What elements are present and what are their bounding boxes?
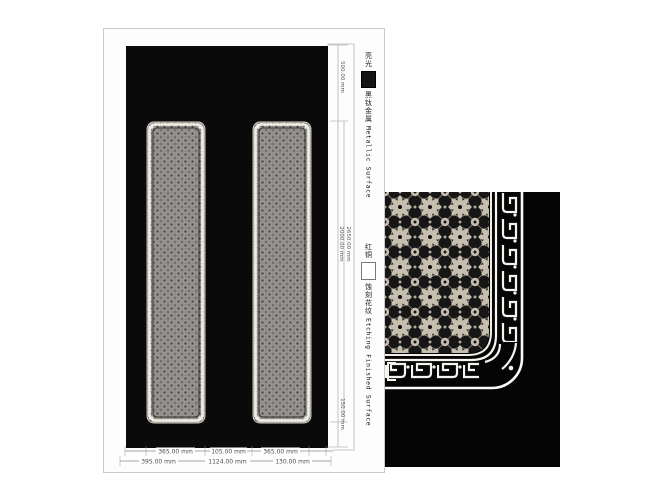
arabesque-pattern-field xyxy=(385,192,489,353)
legend-metallic-name-cn: 黑钛金属 xyxy=(365,91,372,123)
etched-panels-drawing xyxy=(126,46,328,448)
etched-panel-1 xyxy=(147,122,205,423)
etched-panel-2 xyxy=(253,122,311,423)
legend-metallic-name-en: Metallic Surface xyxy=(365,126,372,198)
legend-etching-name-en: Etching Finished Surface xyxy=(365,318,372,426)
ornament-corner-detail-view xyxy=(385,192,560,467)
outline-swatch-icon xyxy=(361,262,376,280)
legend-etching: 红铜 蚀刻花纹 Etching Finished Surface xyxy=(356,243,380,426)
drawing-black-canvas xyxy=(126,46,328,448)
screenshot-stage: 500.00 mm 2000.00 mm 2650.00 mm 150.00 m… xyxy=(0,0,670,503)
legend-etching-head: 红铜 xyxy=(365,243,372,259)
legend-metallic: 亮光 黑钛金属 Metallic Surface xyxy=(356,52,380,198)
drawing-sheet xyxy=(103,28,385,473)
legend-metallic-prefix: 亮光 xyxy=(365,52,372,68)
meander-band-vertical xyxy=(499,192,519,342)
ornament-corner-detail-svg xyxy=(385,192,560,467)
black-swatch-icon xyxy=(361,71,376,88)
meander-band-horizontal xyxy=(385,361,479,382)
legend-etching-name-cn: 蚀刻花纹 xyxy=(365,283,372,315)
